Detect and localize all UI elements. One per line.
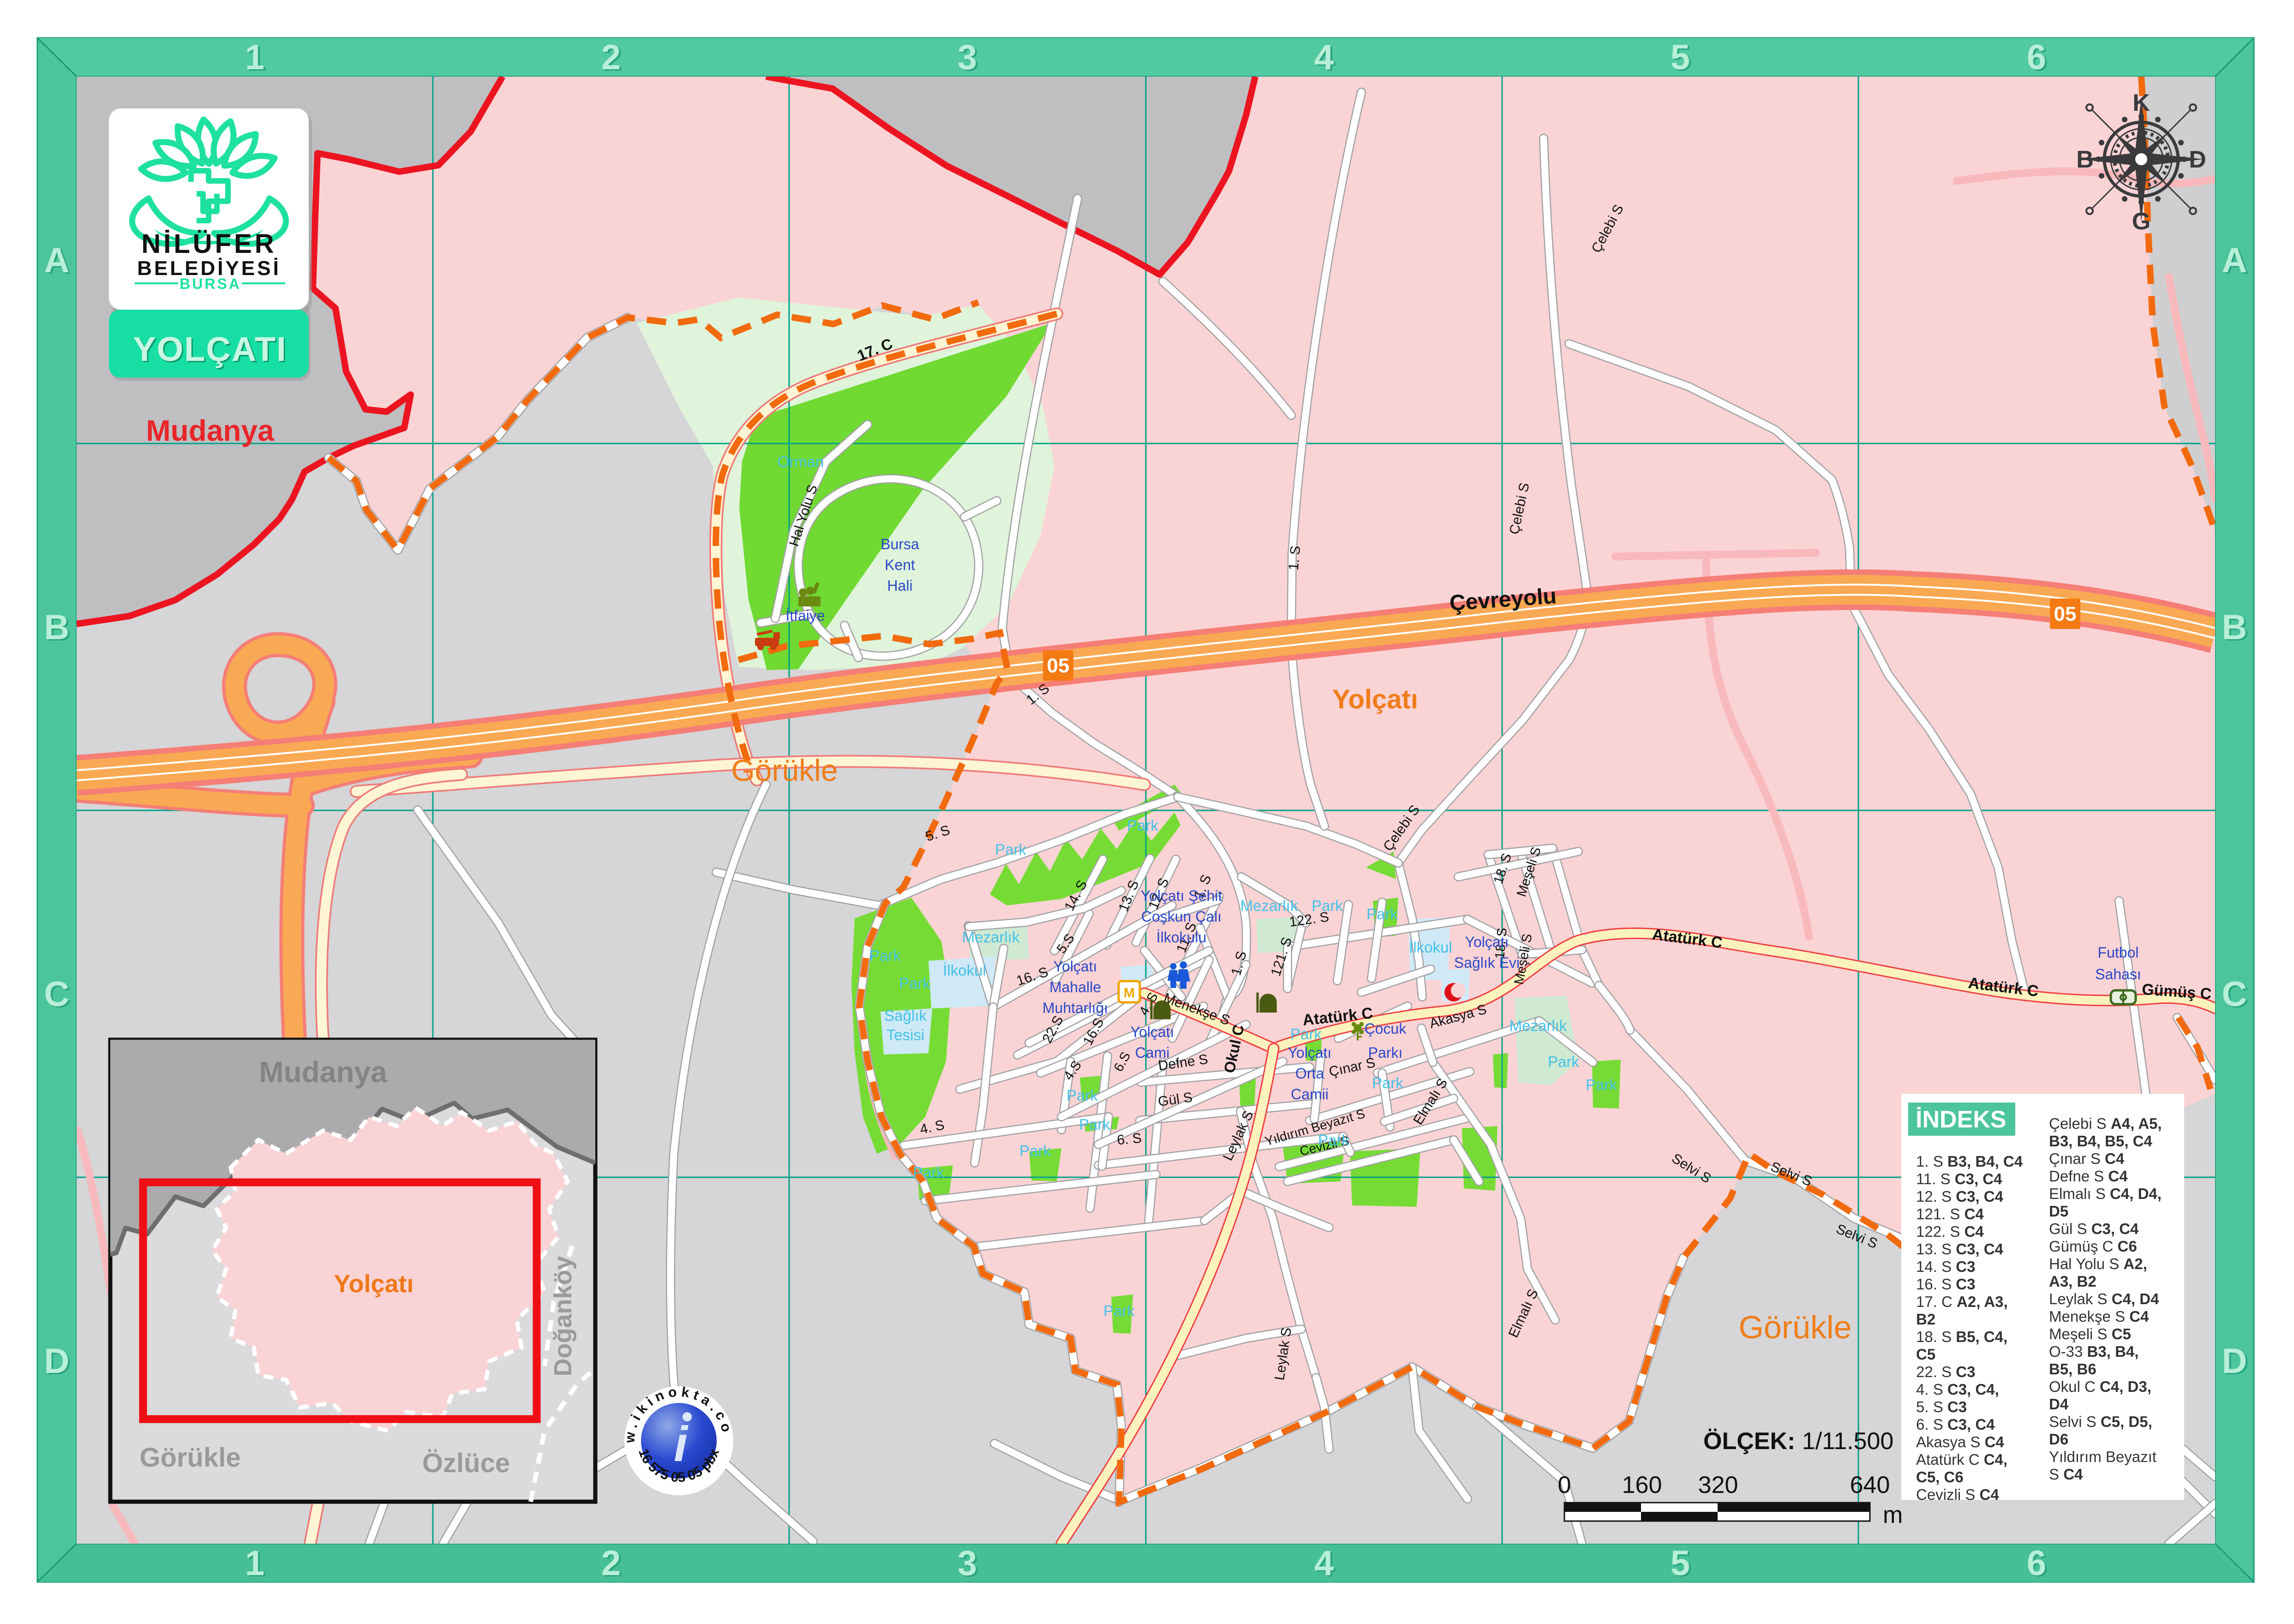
svg-text:K: K xyxy=(2132,90,2150,116)
svg-text:Park: Park xyxy=(1127,817,1158,834)
svg-text:Yolçatı: Yolçatı xyxy=(1288,1044,1332,1061)
svg-text:22. S C3: 22. S C3 xyxy=(1916,1363,1975,1380)
svg-text:1. S B3, B4, C4: 1. S B3, B4, C4 xyxy=(1916,1153,2023,1170)
svg-text:13. S C3, C4: 13. S C3, C4 xyxy=(1916,1240,2004,1258)
svg-text:Hali: Hali xyxy=(887,577,912,594)
svg-text:Park: Park xyxy=(899,975,930,992)
svg-text:17. C A2, A3,: 17. C A2, A3, xyxy=(1916,1293,2008,1310)
svg-text:Okul C C4, D3,: Okul C C4, D3, xyxy=(2049,1378,2151,1395)
svg-text:Özlüce: Özlüce xyxy=(422,1448,510,1478)
svg-text:1: 1 xyxy=(245,1544,264,1583)
svg-text:Mezarlık: Mezarlık xyxy=(1509,1017,1567,1034)
svg-text:Kent: Kent xyxy=(885,557,915,573)
svg-text:D5: D5 xyxy=(2049,1203,2068,1220)
svg-text:Akasya S C4: Akasya S C4 xyxy=(1916,1433,2004,1450)
svg-text:Orta: Orta xyxy=(1295,1065,1324,1082)
svg-text:Yıldırım Beyazıt: Yıldırım Beyazıt xyxy=(2049,1448,2156,1465)
svg-text:Meşeli S C5: Meşeli S C5 xyxy=(2049,1325,2131,1342)
svg-text:Mudanya: Mudanya xyxy=(259,1055,387,1089)
svg-text:Park: Park xyxy=(1079,1116,1110,1133)
svg-text:11. S C3, C4: 11. S C3, C4 xyxy=(1916,1170,2002,1187)
svg-text:05: 05 xyxy=(2054,603,2077,625)
svg-text:Hal Yolu S A2,: Hal Yolu S A2, xyxy=(2049,1255,2147,1272)
svg-text:İlkokulu: İlkokulu xyxy=(1156,929,1207,946)
svg-text:i: i xyxy=(674,1416,689,1472)
svg-text:6: 6 xyxy=(2027,1544,2046,1583)
svg-text:D: D xyxy=(2222,1342,2247,1381)
svg-text:2: 2 xyxy=(601,1544,621,1583)
svg-text:B3, B4, B5, C4: B3, B4, B5, C4 xyxy=(2049,1133,2152,1150)
svg-text:O-33 B3, B4,: O-33 B3, B4, xyxy=(2049,1343,2138,1360)
svg-text:Gül S C3, C4: Gül S C3, C4 xyxy=(2049,1220,2139,1237)
svg-text:Park: Park xyxy=(1312,897,1343,914)
svg-text:4. S C3, C4,: 4. S C3, C4, xyxy=(1916,1381,1999,1398)
svg-text:Park: Park xyxy=(869,947,901,964)
svg-text:Park: Park xyxy=(1318,1132,1349,1149)
svg-text:121. S C4: 121. S C4 xyxy=(1916,1205,1984,1222)
svg-text:3: 3 xyxy=(958,38,977,77)
svg-text:Selvi S C5, D5,: Selvi S C5, D5, xyxy=(2049,1413,2152,1430)
svg-text:320: 320 xyxy=(1698,1472,1738,1498)
svg-text:Yolçatı Şehit: Yolçatı Şehit xyxy=(1141,887,1222,904)
svg-text:Mezarlık: Mezarlık xyxy=(1240,897,1298,914)
svg-text:Tesisi: Tesisi xyxy=(886,1026,925,1043)
svg-text:6: 6 xyxy=(2027,38,2046,77)
svg-text:B: B xyxy=(2076,146,2094,173)
svg-text:Yolçatı: Yolçatı xyxy=(1332,684,1418,714)
svg-text:Muhtarlığı: Muhtarlığı xyxy=(1042,1000,1108,1016)
svg-text:Futbol: Futbol xyxy=(2098,944,2139,961)
svg-text:Çınar S C4: Çınar S C4 xyxy=(2049,1150,2125,1167)
svg-text:İNDEKS: İNDEKS xyxy=(1916,1106,2006,1133)
svg-text:C: C xyxy=(44,975,70,1014)
svg-text:Mahalle: Mahalle xyxy=(1049,979,1101,995)
svg-text:C5: C5 xyxy=(1916,1346,1935,1363)
svg-text:Park: Park xyxy=(1103,1302,1135,1319)
svg-text:Görükle: Görükle xyxy=(731,753,838,787)
svg-text:M: M xyxy=(1124,986,1135,1001)
svg-text:160: 160 xyxy=(1622,1472,1662,1498)
svg-text:Leylak S C4, D4: Leylak S C4, D4 xyxy=(2049,1290,2159,1307)
svg-text:B5, B6: B5, B6 xyxy=(2049,1360,2096,1378)
svg-text:5. S C3: 5. S C3 xyxy=(1916,1398,1967,1415)
svg-text:Cevizli S C4: Cevizli S C4 xyxy=(1916,1486,1999,1503)
svg-text:2: 2 xyxy=(601,38,621,77)
svg-text:Menekşe S C4: Menekşe S C4 xyxy=(2049,1308,2149,1325)
svg-text:1: 1 xyxy=(245,38,264,77)
svg-text:6. S: 6. S xyxy=(1116,1131,1142,1148)
svg-text:İtfaiye: İtfaiye xyxy=(785,607,825,624)
svg-text:Coşkun Çalı: Coşkun Çalı xyxy=(1141,908,1222,925)
svg-text:Elmalı S C4, D4,: Elmalı S C4, D4, xyxy=(2049,1185,2162,1202)
svg-text:Park: Park xyxy=(1372,1074,1403,1091)
svg-text:12. S C3, C4: 12. S C3, C4 xyxy=(1916,1188,2004,1205)
svg-text:A3, B2: A3, B2 xyxy=(2049,1273,2096,1290)
svg-text:Yolçatı: Yolçatı xyxy=(1131,1024,1174,1040)
svg-text:16. S C3: 16. S C3 xyxy=(1916,1276,1975,1293)
svg-text:S C4: S C4 xyxy=(2049,1466,2083,1483)
svg-text:Park: Park xyxy=(995,841,1026,858)
svg-text:Mudanya: Mudanya xyxy=(146,414,274,447)
svg-text:5: 5 xyxy=(1671,1544,1690,1583)
svg-text:Sağlık Evi: Sağlık Evi xyxy=(1454,954,1520,971)
svg-text:Gümüş C C6: Gümüş C C6 xyxy=(2049,1238,2137,1255)
svg-text:Mezarlık: Mezarlık xyxy=(962,929,1020,946)
svg-text:18. S B5, C4,: 18. S B5, C4, xyxy=(1916,1328,2007,1345)
svg-text:D: D xyxy=(2189,146,2206,173)
svg-text:Doğanköy: Doğanköy xyxy=(549,1256,577,1376)
svg-text:122. S C4: 122. S C4 xyxy=(1916,1223,1984,1240)
svg-text:Defne S C4: Defne S C4 xyxy=(2049,1168,2128,1185)
svg-text:Park: Park xyxy=(1586,1076,1617,1093)
svg-text:Çelebi S A4, A5,: Çelebi S A4, A5, xyxy=(2049,1115,2162,1132)
svg-text:Park: Park xyxy=(1290,1025,1322,1043)
svg-text:BURSA: BURSA xyxy=(180,276,241,292)
svg-text:4: 4 xyxy=(1314,38,1334,77)
svg-text:Orman: Orman xyxy=(778,453,824,470)
svg-text:Parkı: Parkı xyxy=(1368,1044,1403,1061)
svg-text:14. S C3: 14. S C3 xyxy=(1916,1258,1975,1275)
svg-text:Görükle: Görükle xyxy=(1738,1309,1851,1345)
svg-text:B2: B2 xyxy=(1916,1311,1935,1328)
svg-text:Park: Park xyxy=(1366,905,1398,923)
svg-text:G: G xyxy=(2132,208,2150,235)
svg-text:3: 3 xyxy=(958,1544,977,1583)
svg-text:D6: D6 xyxy=(2049,1431,2068,1448)
svg-text:Park: Park xyxy=(1066,1087,1098,1104)
svg-text:1. S: 1. S xyxy=(1286,545,1304,571)
svg-text:NİLÜFER: NİLÜFER xyxy=(141,229,276,259)
svg-text:C5, C6: C5, C6 xyxy=(1916,1468,1964,1486)
svg-text:Yolçatı: Yolçatı xyxy=(1054,958,1097,975)
svg-text:0: 0 xyxy=(1558,1472,1571,1498)
svg-text:Yolçatı: Yolçatı xyxy=(1465,934,1509,950)
svg-text:B: B xyxy=(2222,608,2247,647)
svg-text:Bursa: Bursa xyxy=(880,536,919,552)
svg-text:B: B xyxy=(44,608,70,647)
svg-text:Çocuk: Çocuk xyxy=(1365,1020,1407,1037)
svg-text:Cami: Cami xyxy=(1135,1044,1170,1061)
svg-text:Sahası: Sahası xyxy=(2095,966,2141,983)
svg-text:640: 640 xyxy=(1850,1472,1890,1498)
svg-text:İlkokul: İlkokul xyxy=(943,962,986,979)
svg-text:m: m xyxy=(1883,1502,1903,1528)
svg-text:5: 5 xyxy=(1671,38,1690,77)
svg-text:05: 05 xyxy=(1047,654,1070,677)
svg-text:Görükle: Görükle xyxy=(139,1443,240,1473)
svg-text:C: C xyxy=(2222,975,2247,1014)
svg-text:Park: Park xyxy=(1548,1053,1579,1070)
svg-text:D: D xyxy=(44,1342,70,1381)
svg-text:A: A xyxy=(44,241,70,280)
svg-text:A: A xyxy=(2222,241,2247,280)
svg-text:Park: Park xyxy=(1019,1142,1051,1159)
svg-text:Camii: Camii xyxy=(1291,1086,1329,1103)
svg-text:YOLÇATI: YOLÇATI xyxy=(133,330,287,368)
svg-text:Yolçatı: Yolçatı xyxy=(334,1270,413,1298)
svg-text:ÖLÇEK: 1/11.500: ÖLÇEK: 1/11.500 xyxy=(1703,1428,1893,1455)
svg-text:Sağlık: Sağlık xyxy=(884,1007,927,1024)
svg-text:6. S C3, C4: 6. S C3, C4 xyxy=(1916,1416,1995,1433)
svg-text:İlkokul: İlkokul xyxy=(1409,939,1452,956)
svg-text:Atatürk C C4,: Atatürk C C4, xyxy=(1916,1451,2007,1468)
svg-text:Park: Park xyxy=(913,1164,944,1181)
svg-text:D4: D4 xyxy=(2049,1396,2069,1413)
svg-text:4: 4 xyxy=(1314,1544,1334,1583)
